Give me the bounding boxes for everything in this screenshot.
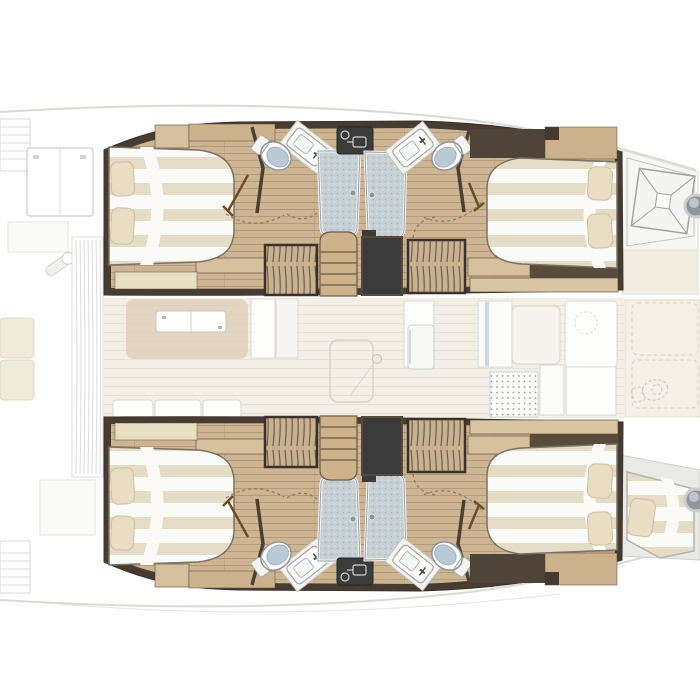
foredeck-panels [625,300,700,417]
cabinet [276,299,298,358]
accent-door-strip [485,302,489,366]
hull-chine [60,594,560,612]
porthole-highlight [689,198,699,208]
galley-counter [512,306,560,364]
galley-counter [566,367,616,415]
port-hull [104,120,623,296]
locker-panel [625,300,700,417]
galley-counter [478,301,512,367]
aft-cockpit [0,119,103,593]
galley-counter [540,365,564,415]
sofa-cushion [203,400,241,418]
sofa-cushion [155,400,201,418]
starboard-hull [104,416,623,592]
cockpit-bench [40,480,95,535]
bench-cushion [0,360,34,400]
cabinet [251,299,275,358]
refrigerator [408,325,434,369]
catamaran-floorplan [0,0,700,700]
door-knob [373,355,382,364]
saloon-galley-faded [104,298,624,418]
cockpit-bench [8,222,68,252]
foredeck-sunpad [622,250,698,294]
floorplan-canvas [0,0,700,700]
galley-counter [565,301,617,367]
pillow [626,498,656,538]
sofa-cushion [113,400,153,418]
bench-cushion [0,318,34,358]
sink-drainer [490,372,538,417]
porthole-highlight [689,492,699,502]
